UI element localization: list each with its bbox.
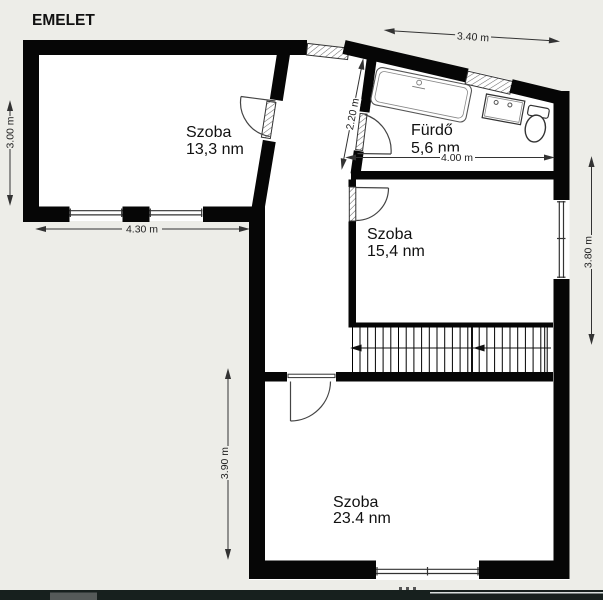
svg-text:3.00 m: 3.00 m <box>5 116 17 148</box>
svg-text:Fürdő: Fürdő <box>411 122 453 139</box>
svg-text:3.40 m: 3.40 m <box>457 30 490 44</box>
svg-text:4.30 m: 4.30 m <box>126 224 158 236</box>
svg-text:13,3 nm: 13,3 nm <box>186 141 244 158</box>
svg-text:3.90 m: 3.90 m <box>219 447 231 479</box>
svg-text:15,4 nm: 15,4 nm <box>367 243 425 260</box>
svg-text:Szoba: Szoba <box>367 226 412 243</box>
svg-text:EMELET: EMELET <box>32 12 95 29</box>
svg-text:23.4 nm: 23.4 nm <box>333 510 391 527</box>
svg-text:Szoba: Szoba <box>186 124 231 141</box>
svg-text:4.00 m: 4.00 m <box>441 152 473 164</box>
svg-text:3.80 m: 3.80 m <box>583 236 595 268</box>
svg-text:Szoba: Szoba <box>333 494 378 511</box>
